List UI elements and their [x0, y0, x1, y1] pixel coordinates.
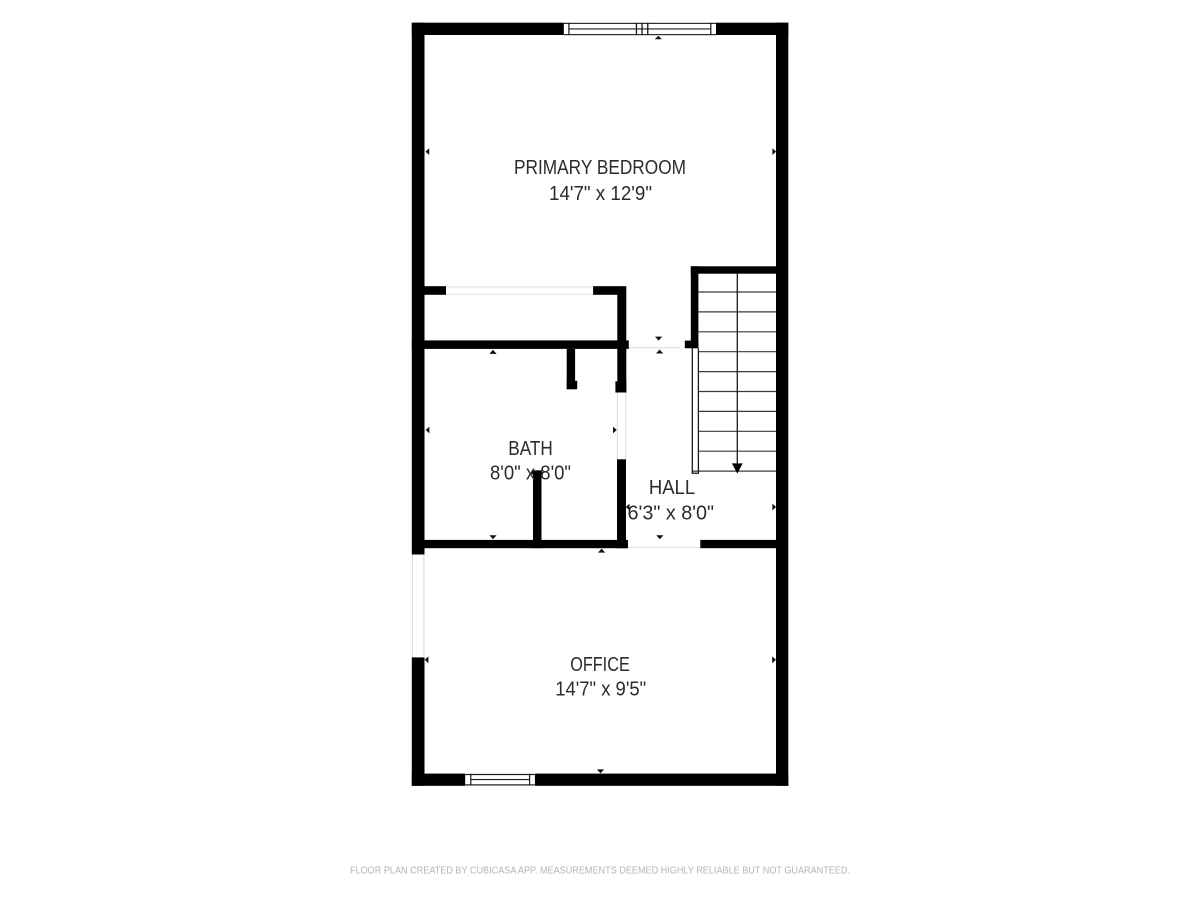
svg-text:6'3" x 8'0": 6'3" x 8'0"	[628, 502, 715, 524]
svg-text:FLOOR PLAN CREATED BY CUBICASA: FLOOR PLAN CREATED BY CUBICASA APP. MEAS…	[350, 865, 850, 876]
svg-text:HALL: HALL	[649, 477, 695, 499]
svg-text:14'7" x 12'9": 14'7" x 12'9"	[549, 183, 652, 205]
svg-text:OFFICE: OFFICE	[570, 654, 630, 676]
svg-text:14'7" x 9'5": 14'7" x 9'5"	[555, 679, 646, 701]
svg-text:BATH: BATH	[508, 438, 553, 460]
svg-text:PRIMARY BEDROOM: PRIMARY BEDROOM	[514, 157, 686, 179]
svg-text:8'0" x 8'0": 8'0" x 8'0"	[490, 462, 571, 484]
